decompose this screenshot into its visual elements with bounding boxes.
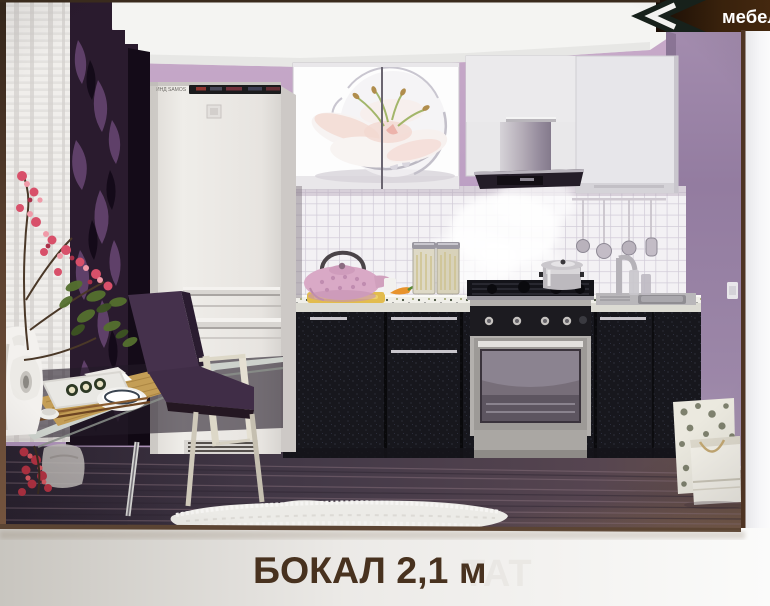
svg-text:мебель: мебель [722,6,770,27]
svg-text:БОКАЛ 2,1 м: БОКАЛ 2,1 м [253,549,487,591]
